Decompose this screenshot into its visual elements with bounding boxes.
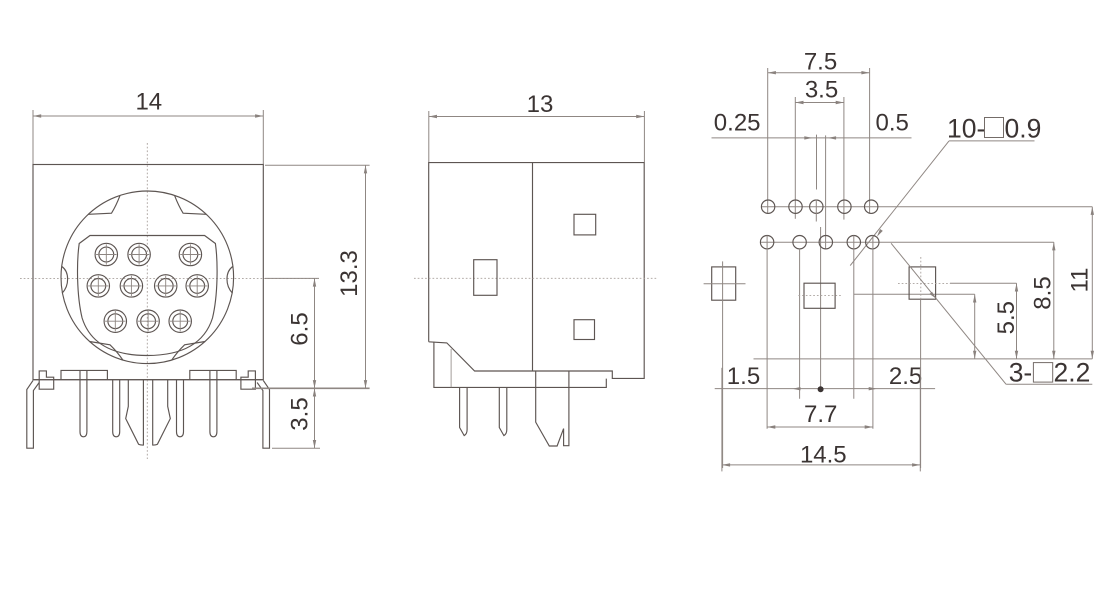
svg-text:8.5: 8.5 [1030,276,1057,309]
svg-text:2.2: 2.2 [1054,358,1091,388]
svg-text:3-: 3- [1009,358,1033,388]
svg-text:0.9: 0.9 [1005,114,1042,144]
svg-text:2.5: 2.5 [889,363,922,390]
svg-text:0.25: 0.25 [714,110,761,137]
svg-text:3.5: 3.5 [805,77,838,104]
svg-text:0.5: 0.5 [876,110,909,137]
svg-text:3.5: 3.5 [287,397,314,430]
svg-text:6.5: 6.5 [287,312,314,345]
svg-text:11: 11 [1067,268,1094,293]
svg-text:14.5: 14.5 [800,442,847,469]
svg-text:14: 14 [135,89,162,116]
svg-text:13: 13 [527,91,554,118]
svg-text:13.3: 13.3 [336,250,363,297]
svg-text:7.7: 7.7 [804,401,837,428]
svg-text:5.5: 5.5 [993,301,1020,334]
svg-text:10-: 10- [947,114,985,144]
svg-text:1.5: 1.5 [727,363,760,390]
svg-text:7.5: 7.5 [804,49,837,76]
